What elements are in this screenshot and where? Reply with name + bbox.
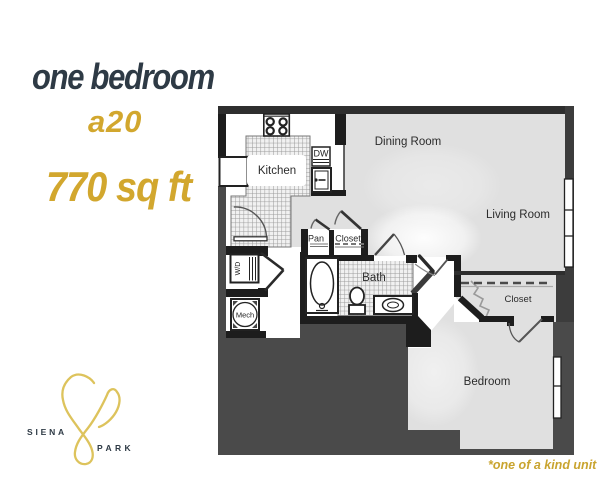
svg-text:Bath: Bath	[362, 272, 386, 284]
svg-text:DW: DW	[314, 149, 329, 159]
svg-text:Kitchen: Kitchen	[258, 165, 296, 177]
svg-text:Closet: Closet	[335, 234, 361, 244]
svg-text:Mech: Mech	[236, 311, 254, 320]
svg-text:Pan: Pan	[308, 234, 324, 244]
svg-text:Closet: Closet	[505, 294, 532, 305]
svg-text:Dining Room: Dining Room	[375, 136, 441, 148]
svg-text:Bedroom: Bedroom	[464, 376, 511, 388]
svg-text:W/D: W/D	[235, 262, 242, 276]
svg-text:Living Room: Living Room	[486, 209, 550, 221]
